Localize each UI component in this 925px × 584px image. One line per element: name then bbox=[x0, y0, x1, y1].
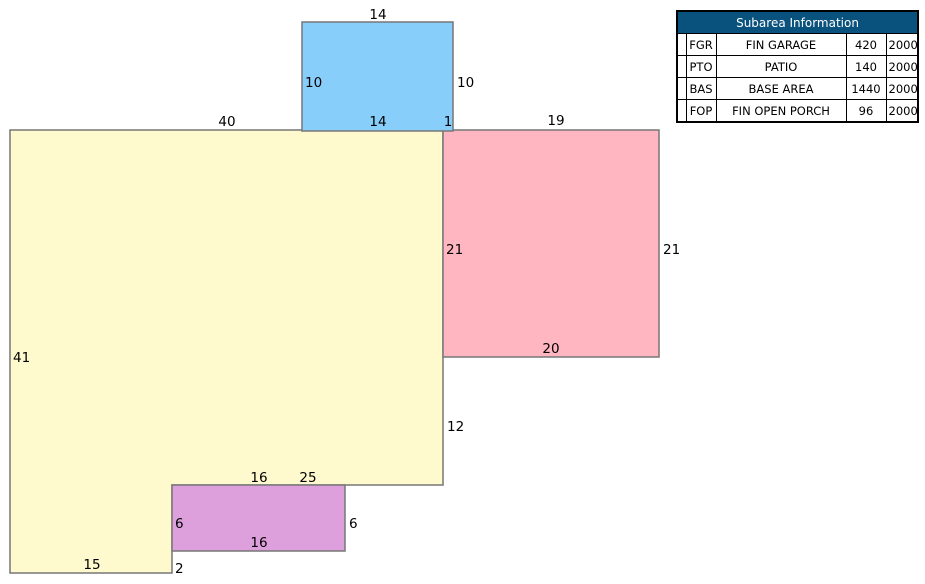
subarea-code: FGR bbox=[686, 34, 716, 56]
dim-label-porch-right: 6 bbox=[349, 516, 358, 532]
subarea-year: 2000 bbox=[886, 100, 918, 123]
table-row-fgr: FGR FIN GARAGE 420 2000 bbox=[677, 34, 918, 56]
subarea-description: BASE AREA bbox=[716, 78, 846, 100]
table-row-fop: FOP FIN OPEN PORCH 96 2000 bbox=[677, 100, 918, 123]
dim-label-patio-bottom: 14 bbox=[369, 114, 386, 130]
subarea-description: FIN OPEN PORCH bbox=[716, 100, 846, 123]
color-swatch-pto bbox=[677, 56, 686, 78]
subarea-year: 2000 bbox=[886, 78, 918, 100]
subarea-area: 1440 bbox=[846, 78, 886, 100]
subarea-description: PATIO bbox=[716, 56, 846, 78]
fin-garage-shape bbox=[443, 130, 659, 357]
color-swatch-fop bbox=[677, 100, 686, 123]
subarea-description: FIN GARAGE bbox=[716, 34, 846, 56]
dim-label-base-top: 40 bbox=[218, 114, 235, 130]
color-swatch-fgr bbox=[677, 34, 686, 56]
dim-label-garage-bottom: 20 bbox=[542, 341, 559, 357]
table-row-bas: BAS BASE AREA 1440 2000 bbox=[677, 78, 918, 100]
subarea-code: FOP bbox=[686, 100, 716, 123]
subarea-code: PTO bbox=[686, 56, 716, 78]
dim-label-garage-top: 19 bbox=[547, 113, 564, 129]
dim-label-patio-left: 10 bbox=[305, 75, 322, 91]
subarea-info-table: Subarea Information FGR FIN GARAGE 420 2… bbox=[676, 10, 919, 123]
subarea-year: 2000 bbox=[886, 56, 918, 78]
dim-label-garage-left: 21 bbox=[446, 242, 463, 258]
dim-label-garage-right: 21 bbox=[663, 242, 680, 258]
table-title: Subarea Information bbox=[677, 11, 918, 34]
dim-label-porch-left: 6 bbox=[175, 516, 184, 532]
subarea-area: 96 bbox=[846, 100, 886, 123]
table-row-pto: PTO PATIO 140 2000 bbox=[677, 56, 918, 78]
dim-label-porch-bottom: 16 bbox=[250, 535, 267, 551]
subarea-area: 420 bbox=[846, 34, 886, 56]
color-swatch-bas bbox=[677, 78, 686, 100]
dim-label-base-step-right: 2 bbox=[175, 561, 184, 577]
parcel-sketch-page: 14 10 10 14 1 40 19 21 21 20 41 12 16 25… bbox=[0, 0, 925, 584]
dim-label-base-step-bottom: 25 bbox=[299, 470, 316, 486]
subarea-code: BAS bbox=[686, 78, 716, 100]
dim-label-base-right-lower: 12 bbox=[447, 419, 464, 435]
subarea-year: 2000 bbox=[886, 34, 918, 56]
dim-label-patio-overhang: 1 bbox=[444, 114, 453, 130]
dim-label-porch-top: 16 bbox=[250, 470, 267, 486]
table-header-row: Subarea Information bbox=[677, 11, 918, 34]
dim-label-patio-top: 14 bbox=[369, 7, 386, 23]
dim-label-base-left: 41 bbox=[13, 350, 30, 366]
dim-label-patio-right: 10 bbox=[457, 75, 474, 91]
dim-label-base-bottom: 15 bbox=[83, 557, 100, 573]
subarea-area: 140 bbox=[846, 56, 886, 78]
